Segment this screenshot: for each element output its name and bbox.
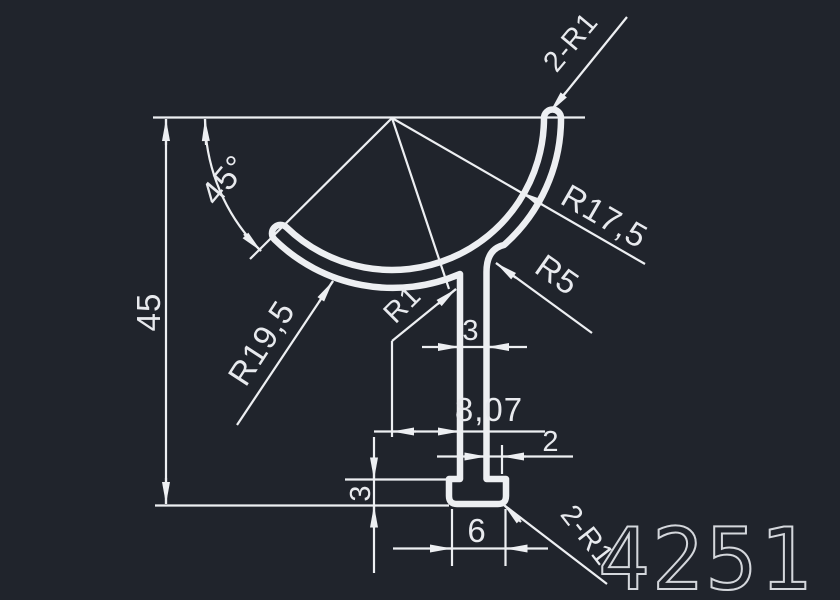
stem-width-label: 3 [462, 315, 479, 347]
angle-arrow-top [205, 119, 206, 145]
stem-offset-label: 8,07 [455, 391, 523, 428]
part-number: 4251 [598, 510, 813, 600]
foot-step-label: 2 [542, 426, 559, 458]
foot-height-label: 3 [345, 484, 377, 501]
cad-canvas: 45 45° 2-R1 R17,5 R5 R19,5 R1 3 8,07 2 3… [0, 0, 840, 600]
foot-width-label: 6 [467, 512, 486, 549]
height-label: 45 [130, 293, 167, 332]
